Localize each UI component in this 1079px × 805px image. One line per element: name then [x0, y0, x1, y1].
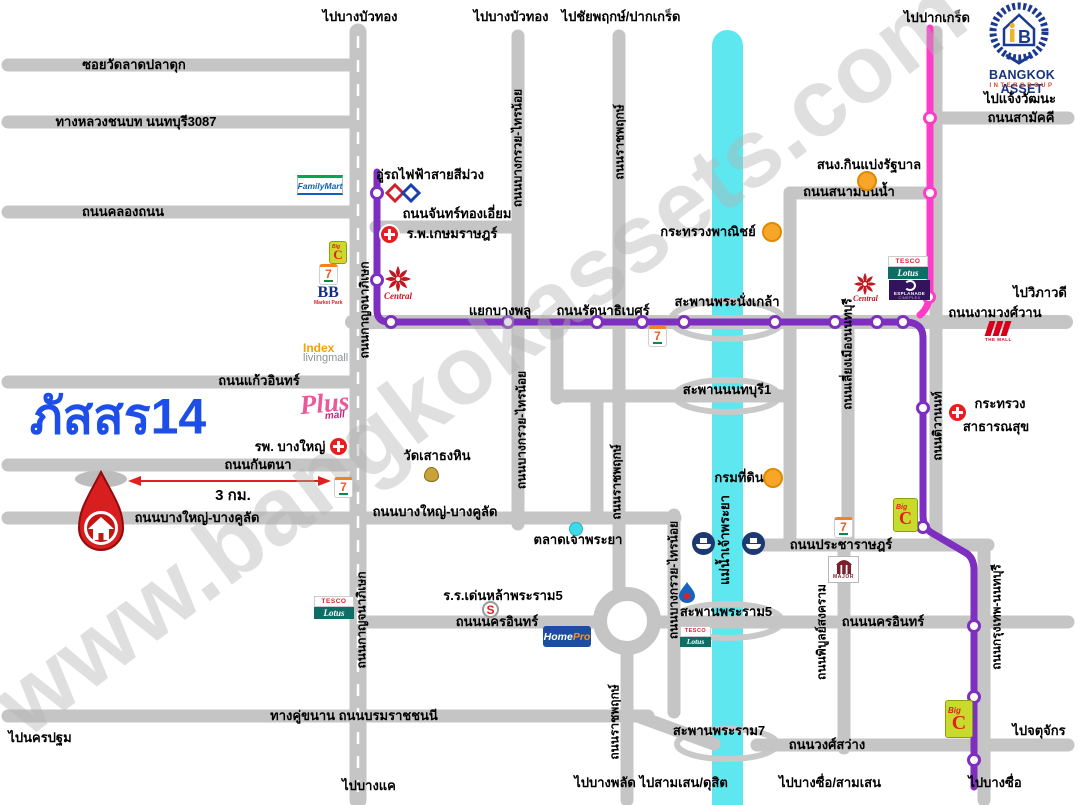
fuel-drop-icon	[679, 582, 695, 608]
road-label-chan-thong-iam: ถนนจันทร์ทองเอี่ยม	[403, 207, 512, 221]
station	[969, 621, 980, 632]
central-logo: Central	[384, 265, 412, 301]
road-label-sanam-bin-nam: ถนนสนามบินน้ำ	[803, 185, 895, 199]
chao-phraya-river	[712, 30, 743, 805]
bb-market-park-logo: BB Market Park	[314, 285, 342, 306]
road-label-nakhon-in-east: ถนนนครอินทร์	[842, 615, 924, 629]
place-label-ministry-health-2: สาธารณสุข	[963, 420, 1029, 434]
dir-bang-sue-samsen: ไปบางซื่อ/สามเสน	[779, 776, 881, 790]
road-label-tiwanon: ถนนติวานนท์	[931, 391, 944, 460]
road-label-bang-yai-bang-khulat-1: ถนนบางใหญ่-บางคูลัด	[135, 511, 260, 525]
seven-eleven-logo: 7	[648, 326, 667, 347]
bridge-label-phra-ram7: สะพานพระราม7	[673, 724, 765, 738]
road-label-wong-sawang: ถนนวงศ์สว่าง	[789, 738, 865, 752]
poi-dot-commerce	[762, 222, 782, 242]
place-label-land-department: กรมที่ดิน	[714, 471, 763, 485]
central-logo: Central	[853, 272, 878, 303]
esplanade-logo: ESPLANADE CINEPLEX	[889, 280, 930, 300]
road-label-bang-kruai-sai-noi-2: ถนนบางกรวย-ไทรน้อย	[515, 371, 528, 489]
dir-nakhon-pathom: ไปนครปฐม	[8, 731, 71, 745]
index-livingmall-logo: Index livingmall	[303, 342, 348, 364]
station	[386, 317, 397, 328]
road-label-bang-kruai-sai-noi-3: ถนนบางกรวย-ไทรน้อย	[667, 521, 680, 639]
road-label-liang-mueang: ถนนเลี่ยงเมืองนนทบุรี	[841, 298, 854, 409]
bigc-logo: Big C	[945, 700, 973, 738]
hospital-cross-icon	[330, 438, 347, 455]
hospital-cross-icon	[381, 226, 398, 243]
bigc-logo: Big C	[329, 241, 347, 264]
station	[925, 113, 936, 124]
tesco-lotus-logo: TESCO Lotus	[680, 626, 711, 647]
familymart-logo: FamilyMart	[297, 175, 343, 195]
road-label-ratchaphruek-2: ถนนราชพฤกษ์	[610, 444, 623, 519]
bangkok-asset-logo: B	[986, 2, 1052, 73]
poi-dot-market	[569, 522, 583, 536]
major-icon	[835, 559, 853, 574]
bridge-label-phra-nangklao: สะพานพระนั่งเกล้า	[674, 295, 779, 309]
bigc-logo: Big C	[893, 498, 918, 532]
station	[770, 317, 781, 328]
place-label-denla-school: ร.ร.เด่นหล้าพระราม5	[443, 589, 562, 603]
road-label-phibun-songkhram: ถนนพิบูลย์สงคราม	[815, 584, 828, 680]
road-label-rural-highway-3087: ทางหลวงชนบท นนทบุรี3087	[55, 115, 216, 129]
dir-chatuchak: ไปจตุจักร	[1012, 724, 1065, 738]
homepro-logo: HomePro	[543, 626, 591, 647]
seven-eleven-logo: 7	[334, 477, 353, 498]
seven-eleven-logo: 7	[834, 517, 853, 538]
the-mall-stripes-icon	[985, 321, 1012, 336]
dir-bang-sue: ไปบางซื่อ	[968, 776, 1021, 790]
poi-dot-lottery	[857, 171, 877, 191]
tesco-lotus-logo: TESCO Lotus	[314, 596, 354, 619]
plus-mall-logo: Plus mall	[299, 388, 351, 424]
major-cineplex-logo: MAJOR	[828, 556, 859, 583]
the-mall-logo: THE MALL	[985, 321, 1012, 342]
mrt-logo-icon	[385, 183, 421, 208]
road-label-nakhon-in-west: ถนนนครอินทร์	[456, 615, 538, 629]
station	[898, 317, 909, 328]
road-label-kantana: ถนนกันตนา	[224, 458, 291, 472]
road-label-soi-wat-lat-pla-duk: ซอยวัดลาดปลาดุก	[82, 58, 186, 72]
dir-bang-phlat-samsen-dusit: ไปบางพลัด ไปสามเสน/ดุสิต	[574, 776, 728, 790]
road-label-borommaratchachonnani: ทางคู่ขนาน ถนนบรมราชชนนี	[270, 709, 438, 723]
location-map: www.bangkokassets.com ไปบางบัวทอง ไปบางบ…	[0, 0, 1079, 805]
school-icon: S	[482, 601, 499, 618]
distance-arrow	[128, 476, 331, 486]
nakhon-in-roundabout	[600, 594, 654, 648]
road-label-rattanathibet: ถนนรัตนาธิเบศร์	[556, 304, 649, 318]
bangkok-asset-subtitle: INTERGROUP	[970, 83, 1074, 89]
station	[830, 317, 841, 328]
place-label-purple-line-depot: อู่รถไฟฟ้าสายสีม่วง	[376, 168, 484, 182]
station	[918, 403, 929, 414]
place-label-kasemrad-hospital: ร.พ.เกษมราษฎร์	[407, 227, 498, 241]
river-label: แม่น้ำเจ้าพระยา	[718, 495, 732, 585]
ferry-pier-icon	[742, 532, 765, 555]
road-label-ratchaphruek-3: ถนนราชพฤกษ์	[608, 684, 621, 759]
place-label-lottery-office: สนง.กินแบ่งรัฐบาล	[817, 158, 921, 172]
central-star-icon	[853, 272, 877, 296]
road-label-ratchaphruek-1: ถนนราชพฤกษ์	[613, 104, 626, 179]
station	[372, 275, 383, 286]
temple-icon	[424, 467, 439, 482]
station	[969, 755, 980, 766]
place-label-ministry-commerce: กระทรวงพาณิชย์	[660, 225, 755, 239]
station	[918, 522, 929, 533]
dir-bang-bua-thong-2: ไปบางบัวทอง	[474, 10, 549, 24]
road-label-krungthep-nonthaburi: ถนนกรุงเทพ-นนทบุรี	[990, 564, 1003, 670]
road-label-bang-yai-bang-khulat-2: ถนนบางใหญ่-บางคูลัด	[373, 505, 498, 519]
dir-bang-bua-thong-1: ไปบางบัวทอง	[323, 10, 398, 24]
dir-wiphawadi: ไปวิภาวดี	[1013, 286, 1067, 300]
road-label-kanchanaphisek-2: ถนนกาญจนาภิเษก	[355, 571, 368, 668]
place-label-wat-sao-thong-hin: วัดเสาธงหิน	[403, 449, 470, 463]
bangkok-asset-name: BANGKOK ASSET	[970, 68, 1074, 96]
road-label-samakkhi: ถนนสามัคคี	[988, 111, 1055, 125]
road-label-kanchanaphisek-1: ถนนกาญจนาภิเษก	[358, 261, 371, 358]
dir-pak-kret: ไปปากเกร็ด	[904, 11, 970, 25]
road-label-ngam-wong-wan: ถนนงามวงศ์วาน	[948, 306, 1041, 320]
poi-dot-land-department	[763, 468, 783, 488]
road-label-yaek-bang-phlu: แยกบางพลู	[469, 304, 531, 318]
station	[872, 317, 883, 328]
station	[925, 188, 936, 199]
svg-text:B: B	[1018, 27, 1031, 47]
place-label-ministry-health-1: กระทรวง	[974, 397, 1025, 411]
station	[679, 317, 690, 328]
central-star-icon	[384, 265, 412, 293]
bridge-label-nonthaburi1: สะพานนนทบุรี1	[683, 383, 771, 397]
hospital-cross-icon	[949, 404, 966, 421]
dir-bang-khae: ไปบางแค	[342, 779, 396, 793]
project-name: ภัสสร14	[30, 378, 206, 457]
road-label-pracharat: ถนนประชาราษฎร์	[790, 538, 893, 552]
ferry-pier-icon	[692, 532, 715, 555]
esplanade-swirl-icon	[904, 280, 916, 291]
road-label-bang-kruai-sai-noi-1: ถนนบางกรวย-ไทรน้อย	[511, 89, 524, 207]
road-label-khlong-thanon: ถนนคลองถนน	[82, 205, 164, 219]
tesco-lotus-logo: TESCO Lotus	[888, 256, 928, 279]
project-location-pin	[70, 466, 132, 563]
distance-label: 3 กม.	[215, 488, 251, 505]
dir-chaiyaphruek-pak-kret: ไปชัยพฤกษ์/ปากเกร็ด	[562, 10, 681, 24]
place-label-bang-yai-hospital: รพ. บางใหญ่	[255, 440, 326, 454]
road-label-kaeo-in: ถนนแก้วอินทร์	[218, 374, 299, 388]
station	[372, 188, 383, 199]
seven-eleven-logo: 7	[319, 264, 338, 285]
